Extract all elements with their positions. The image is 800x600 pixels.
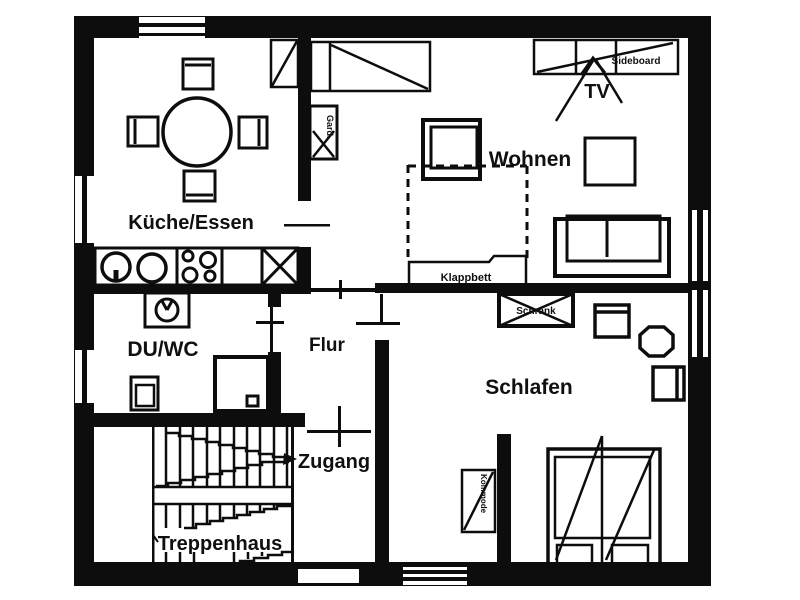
svg-text:DU/WC: DU/WC xyxy=(127,338,198,361)
svg-text:Kommode: Kommode xyxy=(479,474,488,514)
svg-text:Klappbett: Klappbett xyxy=(441,272,492,284)
svg-text:Küche/Essen: Küche/Essen xyxy=(128,212,254,234)
svg-text:Flur: Flur xyxy=(309,335,345,356)
svg-text:Sideboard: Sideboard xyxy=(612,56,661,67)
svg-text:Schlafen: Schlafen xyxy=(485,376,573,399)
svg-text:Gard.: Gard. xyxy=(325,115,335,139)
svg-text:Zugang: Zugang xyxy=(298,451,370,473)
svg-text:Schrank: Schrank xyxy=(516,306,556,317)
svg-text:Wohnen: Wohnen xyxy=(489,148,571,171)
svg-text:Treppenhaus: Treppenhaus xyxy=(158,533,282,555)
svg-text:TV: TV xyxy=(584,81,610,103)
